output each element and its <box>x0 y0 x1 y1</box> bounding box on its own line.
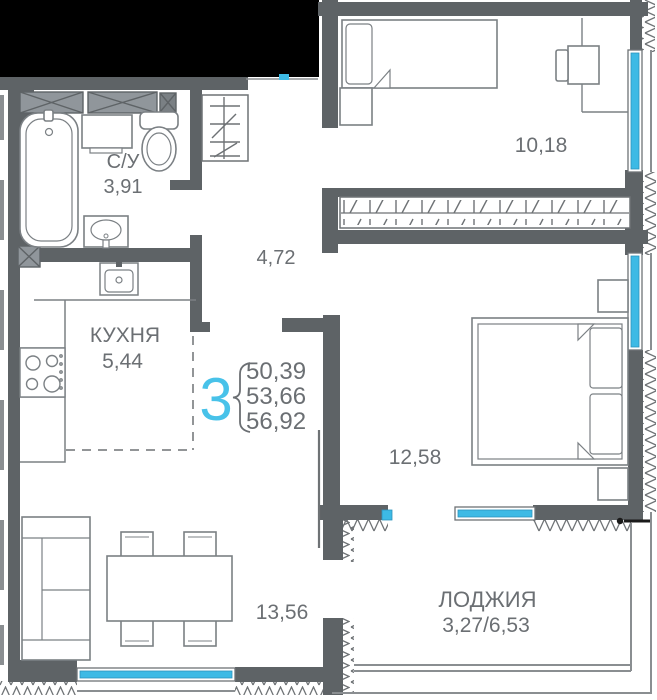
hallway-area: 4,72 <box>246 247 306 269</box>
stove-icon <box>20 348 65 397</box>
loggia-wall-left-pier <box>323 505 343 560</box>
loggia-wall-left-lower <box>323 618 343 695</box>
desk-icon <box>556 18 628 112</box>
bed-double-icon <box>472 318 628 465</box>
bedroom-right-furniture <box>472 280 628 500</box>
exterior-wall-bottom-right <box>235 667 330 682</box>
kitchen-area: 5,44 <box>75 350 170 373</box>
window-bedroom-top <box>628 50 642 172</box>
nightstand-icon <box>340 88 372 125</box>
window-living-bottom <box>77 668 235 681</box>
sofa-icon <box>22 517 90 660</box>
loggia-door-handle <box>617 518 623 524</box>
exterior-wall-right-lower <box>628 350 643 512</box>
exterior-wall-pier <box>630 0 642 52</box>
vent-shaft-icon <box>160 93 176 112</box>
interior-wall-bathroom-right <box>190 88 202 180</box>
interior-wall-corridor-bottom <box>322 230 648 244</box>
loggia-label: ЛОДЖИЯ <box>430 588 545 612</box>
window-loggia <box>382 507 535 520</box>
bathroom-door-jamb <box>170 180 202 190</box>
entrance-door-marker <box>279 74 289 80</box>
sink-icon <box>84 216 128 248</box>
floor-plan: С/У 3,91 КУХНЯ 5,44 4,72 10,18 12,58 13,… <box>0 0 657 700</box>
bathroom-label: С/У <box>92 151 154 173</box>
interior-wall-bedroomtop-upper <box>322 0 338 128</box>
corridor-wardrobe <box>340 197 630 228</box>
interior-wall-kitchen-right <box>190 235 202 332</box>
vent-shaft-icon <box>18 246 40 267</box>
living-area: 13,56 <box>249 601 315 624</box>
exterior-wall-bottom-left <box>8 660 77 682</box>
chair-icon <box>556 50 568 81</box>
loggia-wall-right <box>533 505 643 520</box>
outside-building-mass <box>0 0 319 77</box>
apartment-number: 3 <box>198 372 234 428</box>
bedroom-right-area: 12,58 <box>382 446 448 469</box>
vent-shaft-icon <box>88 92 157 113</box>
bathroom-area: 3,91 <box>92 176 154 198</box>
entrance-wall <box>0 77 248 90</box>
window-bedroom-right <box>628 253 642 350</box>
interior-wall-bedroomtop-bottom <box>338 188 633 197</box>
nightstand-icon <box>598 280 628 312</box>
bed-single-icon <box>342 20 497 88</box>
kitchen-passage-jamb <box>190 322 210 332</box>
kitchen-label: КУХНЯ <box>75 324 175 347</box>
washer-counter-icon <box>82 115 132 153</box>
nightstand-icon <box>598 468 628 500</box>
entry-wardrobe <box>202 95 248 161</box>
apartment-areas: 50,39 53,66 56,92 <box>246 360 306 434</box>
dining-table-icon <box>107 532 232 646</box>
bedroom-top-furniture <box>340 18 628 125</box>
living-furniture <box>22 517 232 660</box>
apartment-area-total: 50,39 <box>246 360 306 385</box>
exterior-wall-left-lower <box>8 248 20 667</box>
bathtub-icon <box>20 110 78 247</box>
apartment-area-living: 53,66 <box>246 385 306 410</box>
apartment-area-full: 56,92 <box>246 410 306 435</box>
loggia-area: 3,27/6,53 <box>430 614 542 637</box>
bedroom-top-area: 10,18 <box>508 134 574 157</box>
living-passage-jamb <box>282 318 323 332</box>
exterior-wall-top <box>318 2 648 16</box>
